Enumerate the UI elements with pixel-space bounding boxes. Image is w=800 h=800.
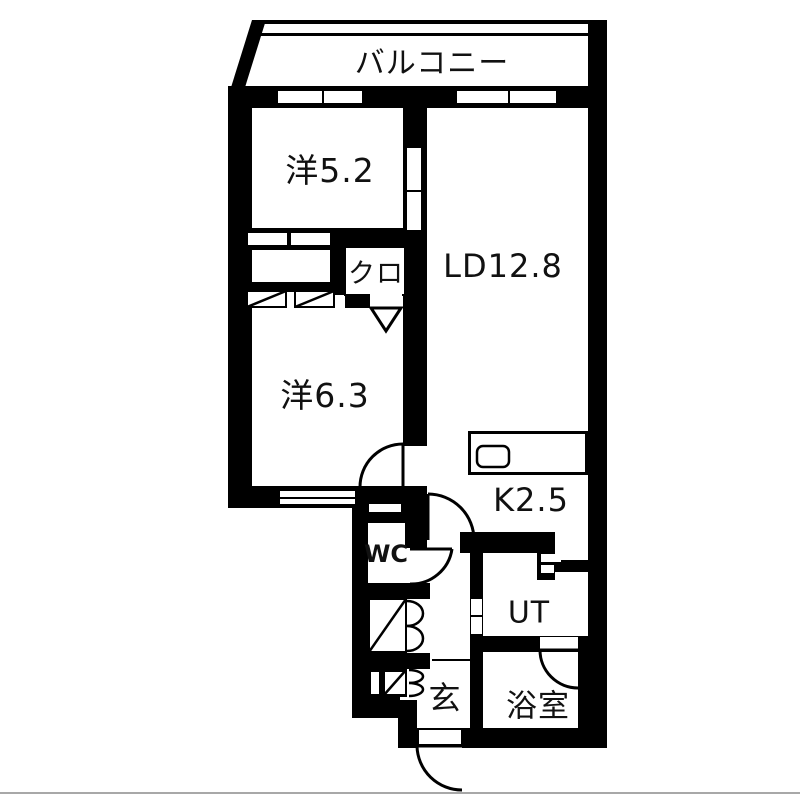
storageB-fold-door-top [409,670,423,683]
closet-slider-right [289,231,332,247]
kitchen-hatch-bottom [541,565,554,573]
room-label-bathroom: 浴室 [506,681,570,726]
room-label-balcony: バルコニー [355,38,509,82]
ut-door-pane-bottom [471,617,482,634]
room-label-bedroom2: 洋6.3 [280,369,369,417]
closet-shelf-right [294,290,335,308]
sliding-door-divider [407,190,421,192]
room-label-closet: クロ [348,252,404,291]
kitchen-counter [468,431,588,475]
entrance-door-arc [417,746,462,790]
kuro-door-opening [370,294,402,309]
storageB-slot [369,670,381,696]
room-label-utility: UT [508,596,550,631]
wall-bottom-left [368,696,400,718]
wall-entry-left [398,700,417,748]
entrance-door-opening [417,728,463,746]
kuro-door-triangle [371,308,401,331]
floor-plan: バルコニー 洋5.2 クロ LD12.8 洋6.3 K2.5 WC UT 玄 浴… [0,0,800,800]
storageB-fold-door-bottom [409,683,423,696]
room-label-entrance: 玄 [428,673,461,719]
closet-slider-left [246,231,289,247]
wall-left-lower [352,492,368,718]
wall-kuro-bottom [345,295,370,308]
wc-door-opening [405,548,427,582]
vent-slot-below-bed2 [367,502,403,514]
bed2-door-arc [360,444,403,487]
balcony-window-left [276,89,364,105]
bed2-bottom-window [278,489,357,506]
window-divider [508,91,510,103]
balcony-rail-inner [250,33,602,36]
storageA-fold-door-top [407,601,423,626]
wall-ut-bath [470,636,607,652]
window-divider [280,497,355,499]
sliding-door-bed1-ld [405,146,423,232]
ut-door-pane-top [471,599,482,615]
photo-border-line [0,792,800,794]
closet-shelf-left [246,290,287,308]
wall-wc-right [405,514,427,548]
window-divider [322,91,324,103]
room-label-wc: WC [364,540,408,568]
kitchen-hatch-top [541,554,561,562]
wall-bottom-right [462,728,607,748]
room-label-living-dining: LD12.8 [443,247,563,285]
wall-rooms-ld [403,86,427,446]
storageA-fold-door-bottom [407,626,423,651]
balcony-rail-outer [256,20,602,24]
balcony-window-right [455,89,558,105]
room-label-kitchen: K2.5 [493,481,569,519]
room-label-bedroom1: 洋5.2 [285,144,374,192]
storageB-box [383,670,407,696]
bath-door-opening [540,637,578,651]
storageA-box [368,598,407,653]
wall-storage-band [368,653,430,669]
